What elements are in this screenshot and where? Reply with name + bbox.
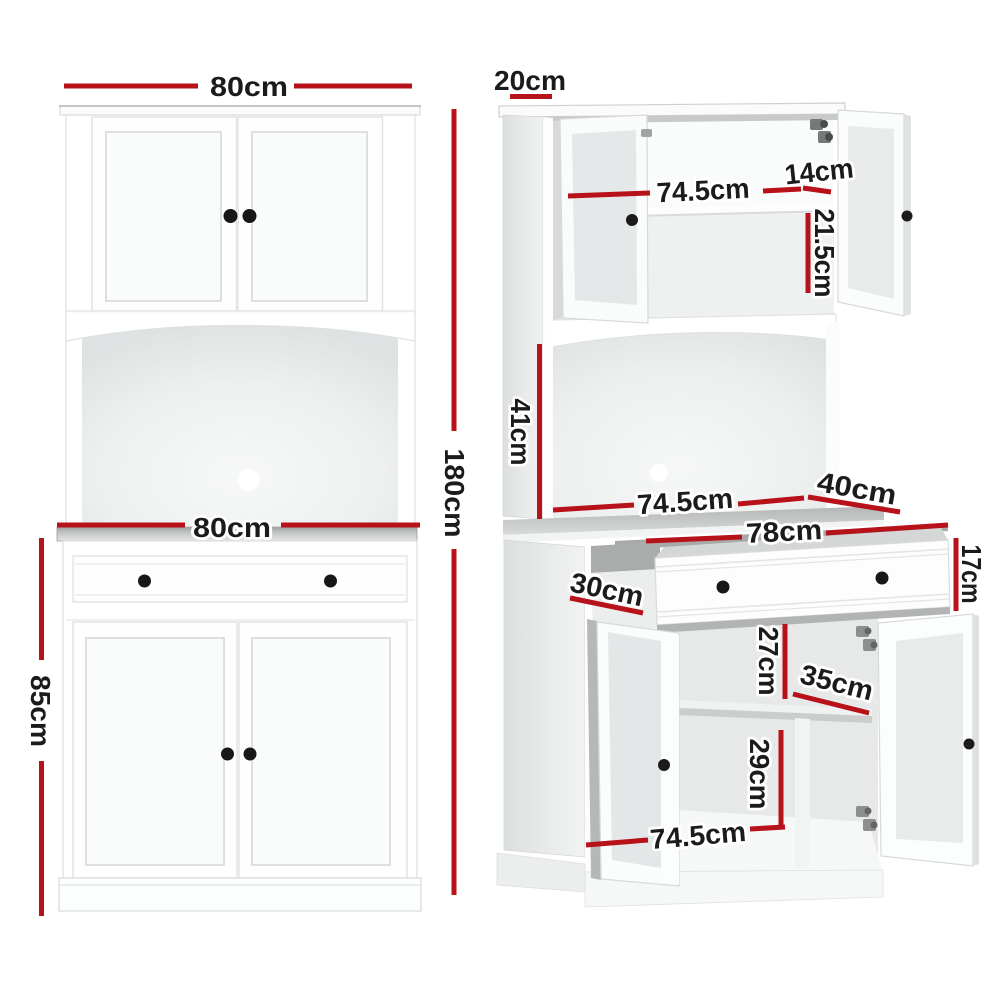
svg-text:78cm: 78cm [745,514,823,549]
svg-text:17cm: 17cm [956,545,987,604]
svg-text:80cm: 80cm [210,71,288,102]
svg-text:74.5cm: 74.5cm [656,173,750,209]
svg-text:85cm: 85cm [25,675,56,747]
svg-text:29cm: 29cm [744,739,775,810]
svg-text:180cm: 180cm [439,449,470,538]
svg-text:41cm: 41cm [505,399,536,466]
svg-text:80cm: 80cm [193,512,271,543]
svg-text:21.5cm: 21.5cm [809,209,840,298]
svg-text:27cm: 27cm [753,627,784,696]
svg-text:20cm: 20cm [494,65,566,96]
